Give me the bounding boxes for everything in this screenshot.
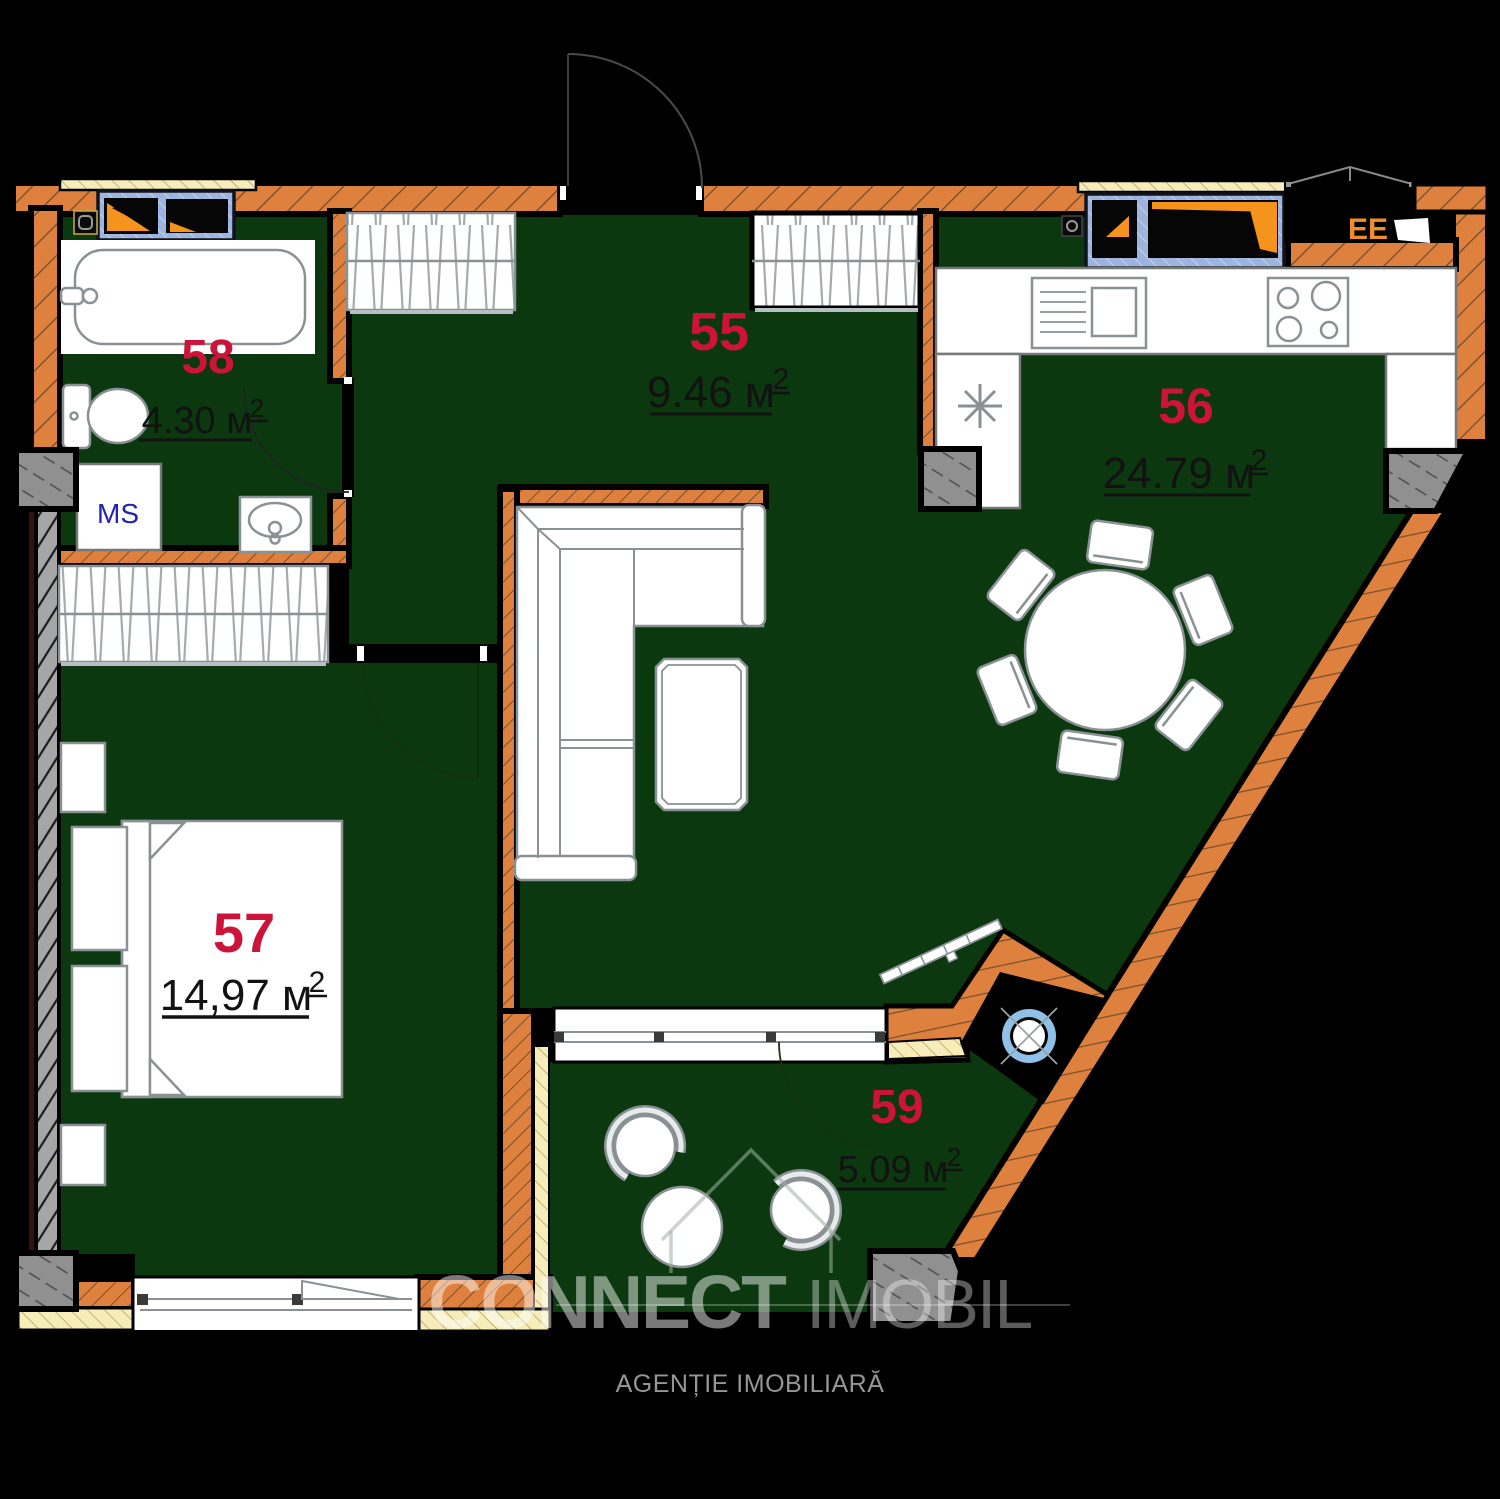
svg-text:2: 2 xyxy=(309,966,326,999)
svg-text:58: 58 xyxy=(181,331,234,384)
svg-text:2: 2 xyxy=(1251,444,1268,477)
svg-text:IMOBIL: IMOBIL xyxy=(806,1265,1031,1343)
svg-text:4.30 м: 4.30 м xyxy=(142,400,253,442)
svg-text:2: 2 xyxy=(773,363,790,396)
svg-text:5.09 м: 5.09 м xyxy=(838,1149,949,1191)
svg-text:9.46 м: 9.46 м xyxy=(647,368,775,417)
svg-text:MS: MS xyxy=(97,498,139,529)
svg-text:CONNECT: CONNECT xyxy=(428,1260,786,1344)
svg-text:14,97 м: 14,97 м xyxy=(160,971,313,1020)
svg-text:59: 59 xyxy=(870,1081,923,1134)
svg-text:56: 56 xyxy=(1158,378,1214,434)
svg-text:AGENȚIE IMOBILIARĂ: AGENȚIE IMOBILIARĂ xyxy=(616,1369,885,1398)
svg-text:57: 57 xyxy=(213,901,275,964)
svg-text:24.79 м: 24.79 м xyxy=(1103,449,1256,498)
svg-text:2: 2 xyxy=(947,1142,961,1172)
svg-text:55: 55 xyxy=(689,302,749,362)
svg-text:2: 2 xyxy=(250,393,264,423)
svg-text:EE: EE xyxy=(1348,213,1388,246)
